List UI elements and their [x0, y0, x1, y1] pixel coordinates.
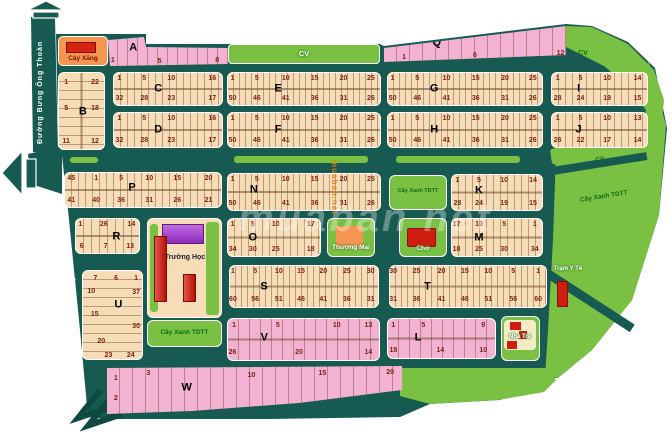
lot-number: 7 — [104, 243, 108, 250]
lot-number: 50 — [229, 137, 237, 144]
lot-number: 20 — [295, 349, 303, 356]
block-letter-P: P — [128, 182, 135, 193]
lot-number: 36 — [117, 197, 125, 204]
block-D: D15101632282317 — [113, 112, 223, 148]
lot-number: 40 — [92, 197, 100, 204]
lot-number: 30 — [249, 246, 257, 253]
lot-number: 10 — [282, 75, 290, 82]
lot-number: 31 — [340, 137, 348, 144]
lot-number: 5 — [415, 75, 419, 82]
lot-number: 10 — [282, 115, 290, 122]
lot-number: 41 — [438, 296, 446, 303]
block-letter-W: W — [181, 382, 191, 393]
cv-label-top: CV — [228, 50, 380, 58]
lot-number: 1 — [391, 115, 395, 122]
lot-number: 20 — [438, 268, 446, 275]
lot-number: 1 — [117, 75, 121, 82]
lot-number: 6 — [473, 52, 477, 59]
block-J: J15101326221714 — [551, 112, 648, 148]
block-P: P4515101520414036312621 — [64, 172, 222, 208]
lot-number: 15 — [311, 176, 319, 183]
lot-number: 20 — [340, 115, 348, 122]
lot-number: 32 — [115, 95, 123, 102]
lot-number: 15 — [173, 175, 181, 182]
green-tdtt-small-label: Cây Xanh TDTT — [390, 189, 446, 195]
gas-station-building — [66, 42, 96, 53]
lot-number: 11 — [62, 138, 69, 145]
lot-number: 1 — [94, 175, 98, 182]
lot-number: 34 — [531, 246, 539, 253]
lot-number: 25 — [367, 115, 375, 122]
block-F: F1510152025504641363126 — [227, 112, 381, 148]
lot-number: 20 — [386, 369, 394, 376]
lot-number: 5 — [142, 75, 146, 82]
lot-number: 24 — [577, 95, 585, 102]
green-tdtt-school-label: Cây Xanh TDTT — [147, 330, 222, 337]
lot-number: 5 — [579, 115, 583, 122]
lot-number: 25 — [343, 268, 351, 275]
block-A: A158 — [108, 36, 228, 66]
lot-number: 46 — [413, 137, 421, 144]
lot-number: 13 — [126, 243, 134, 250]
lot-number: 36 — [311, 95, 319, 102]
lot-number: 14 — [437, 347, 445, 354]
block-letter-R: R — [112, 231, 120, 242]
lot-number: 20 — [205, 175, 213, 182]
lot-number: 15 — [472, 115, 480, 122]
lot-number: 10 — [145, 175, 153, 182]
block-letter-U: U — [114, 300, 122, 311]
lot-number: 1 — [231, 115, 235, 122]
lot-number: 23 — [167, 95, 175, 102]
road-label-bung-ong-thoan-bottom: Đường Bưng Ông Thoàn — [60, 268, 79, 380]
lot-number: 50 — [229, 95, 237, 102]
lot-number: 30 — [389, 268, 397, 275]
lot-number: 5 — [421, 322, 425, 329]
health-station-label: Trạm Y Tế — [546, 266, 590, 272]
lot-number: 31 — [501, 95, 509, 102]
lot-number: 25 — [529, 75, 537, 82]
lot-number: 1 — [114, 375, 118, 382]
lot-number: 1 — [391, 75, 395, 82]
lot-number: 46 — [253, 137, 261, 144]
block-E: E1510152025504641363126 — [227, 72, 381, 106]
lot-number: 41 — [443, 95, 451, 102]
lot-number: 31 — [145, 197, 153, 204]
road-label-bung-ong-thoan-top: Đường Bưng Ông Thoàn — [37, 42, 44, 144]
green-area-bottom — [400, 364, 560, 406]
lot-number: 1 — [391, 322, 395, 329]
lot-number: 1 — [455, 177, 459, 184]
lot-number: 6 — [80, 243, 84, 250]
lot-number: 5 — [255, 176, 259, 183]
lot-number: 1 — [117, 115, 121, 122]
lot-number: 46 — [253, 95, 261, 102]
block-letter-S: S — [260, 281, 267, 292]
lot-number: 15 — [461, 268, 469, 275]
lot-number: 9 — [481, 322, 485, 329]
cv-label-top-right: CV — [568, 50, 598, 57]
health-station-building — [557, 281, 568, 307]
lot-number: 46 — [413, 95, 421, 102]
lot-number: 21 — [205, 197, 213, 204]
lot-number: 8 — [215, 57, 219, 64]
lot-number: 30 — [367, 268, 375, 275]
lot-number: 1 — [556, 115, 560, 122]
lot-number: 14 — [529, 177, 537, 184]
lot-number: 23 — [104, 352, 112, 359]
lot-number: 31 — [501, 137, 509, 144]
lot-number: 18 — [307, 246, 315, 253]
lot-number: 26 — [367, 95, 375, 102]
lot-number: 5 — [276, 322, 280, 329]
lot-number: 25 — [367, 176, 375, 183]
lot-number: 41 — [319, 296, 327, 303]
lot-number: 26 — [173, 197, 181, 204]
lot-number: 1 — [556, 75, 560, 82]
lot-number: 18 — [453, 246, 461, 253]
lot-number: 10 — [443, 115, 451, 122]
lot-number: 14 — [634, 75, 642, 82]
lot-number: 5 — [142, 115, 146, 122]
lot-number: 15 — [311, 115, 319, 122]
block-letter-D: D — [154, 125, 162, 136]
lot-number: 1 — [231, 176, 235, 183]
lot-number: 17 — [603, 137, 611, 144]
lot-number: 56 — [251, 296, 259, 303]
block-letter-B: B — [79, 106, 87, 117]
block-R: R126146713 — [75, 218, 140, 254]
block-letter-N: N — [250, 184, 258, 195]
lot-number: 1 — [134, 275, 138, 282]
market-label: Chợ — [399, 246, 447, 253]
lot-number: 31 — [340, 95, 348, 102]
lot-number: 14 — [365, 349, 373, 356]
lot-number: 36 — [311, 137, 319, 144]
lot-number: 22 — [91, 79, 99, 86]
lot-number: 19 — [603, 95, 611, 102]
lot-number: 10 — [167, 75, 175, 82]
lot-number: 51 — [484, 296, 492, 303]
kindergarten-label: Nhà Trẻ — [500, 334, 540, 340]
lot-number: 26 — [367, 137, 375, 144]
lot-number: 26 — [529, 137, 537, 144]
lot-number: 10 — [500, 177, 508, 184]
lot-number: 10 — [248, 372, 256, 379]
lot-number: 10 — [87, 288, 95, 295]
block-letter-K: K — [475, 186, 483, 197]
lot-number: 37 — [132, 289, 140, 296]
lot-number: 5 — [502, 221, 506, 228]
lot-number: 15 — [529, 200, 537, 207]
block-letter-A: A — [129, 43, 137, 54]
school-green-right — [206, 222, 219, 315]
lot-number: 32 — [115, 137, 123, 144]
lot-number: 56 — [509, 296, 517, 303]
lot-number: 41 — [67, 197, 75, 204]
lot-number: 18 — [389, 347, 397, 354]
lot-number: 20 — [501, 75, 509, 82]
road-bung-ong-thoan — [31, 17, 59, 152]
block-U: U76110371530202324 — [82, 270, 143, 360]
lot-number: 36 — [413, 296, 421, 303]
block-letter-V: V — [261, 332, 268, 343]
lot-number: 45 — [67, 175, 75, 182]
lot-number: 15 — [472, 75, 480, 82]
lot-number: 10 — [167, 115, 175, 122]
lot-number: 24 — [127, 352, 135, 359]
lot-number: 20 — [97, 338, 105, 345]
block-H: H1510152025504641363126 — [387, 112, 543, 148]
lot-number: 19 — [500, 200, 508, 207]
block-L: L159181410 — [387, 318, 496, 359]
lot-number: 18 — [91, 105, 99, 112]
lot-number: 26 — [529, 95, 537, 102]
lot-number: 28 — [140, 95, 148, 102]
lot-number: 1 — [78, 221, 82, 228]
lot-number: 5 — [415, 115, 419, 122]
median-strip — [70, 157, 98, 163]
lot-number: 31 — [389, 296, 397, 303]
lot-number: 26 — [229, 349, 237, 356]
lot-number: 5 — [64, 105, 68, 112]
lot-number: 41 — [282, 137, 290, 144]
lot-number: 22 — [577, 137, 585, 144]
school-label: Trường Học — [150, 254, 220, 261]
block-letter-G: G — [430, 84, 439, 95]
watermark: muaban net — [238, 196, 492, 241]
lot-number: 14 — [128, 221, 136, 228]
lot-number: 5 — [255, 115, 259, 122]
lot-number: 5 — [477, 177, 481, 184]
lot-number: 36 — [472, 95, 480, 102]
block-letter-F: F — [275, 125, 282, 136]
lot-number: 15 — [311, 75, 319, 82]
lot-number: 30 — [500, 246, 508, 253]
block-V: V151013262014 — [227, 318, 380, 361]
block-letter-E: E — [274, 84, 281, 95]
block-letter-J: J — [576, 125, 582, 136]
lot-number: 10 — [484, 268, 492, 275]
lot-number: 15 — [634, 95, 642, 102]
lot-number: 20 — [340, 75, 348, 82]
lot-number: 16 — [208, 115, 216, 122]
gas-station-label: Cây Xăng — [60, 56, 106, 63]
lot-number: 7 — [93, 275, 97, 282]
lot-number: 5 — [253, 268, 257, 275]
lot-number: 20 — [340, 176, 348, 183]
block-letter-C: C — [154, 84, 162, 95]
lot-number: 36 — [343, 296, 351, 303]
lot-number: 1 — [231, 75, 235, 82]
lot-number: 3 — [146, 370, 150, 377]
lot-number: 1 — [231, 221, 235, 228]
lot-number: 17 — [208, 137, 216, 144]
lot-number: 15 — [297, 268, 305, 275]
school-building-red — [183, 274, 196, 302]
block-I: I15101428241915 — [551, 72, 648, 106]
lot-number: 41 — [443, 137, 451, 144]
vertical-watermark: muaban.net — [330, 160, 339, 268]
lot-number: 1 — [533, 221, 537, 228]
lot-number: 15 — [91, 311, 99, 318]
block-B: B1225181112 — [58, 72, 105, 150]
median-strip — [396, 156, 520, 163]
lot-number: 20 — [501, 115, 509, 122]
lot-number: 46 — [297, 296, 305, 303]
lot-number: 26 — [554, 137, 562, 144]
block-letter-T: T — [424, 281, 431, 292]
lot-number: 23 — [167, 137, 175, 144]
lot-number: 1 — [231, 268, 235, 275]
lot-number: 10 — [603, 75, 611, 82]
lot-number: 20 — [319, 268, 327, 275]
lot-number: 13 — [634, 115, 642, 122]
block-letter-L: L — [415, 332, 422, 343]
lot-number: 34 — [229, 246, 237, 253]
block-letter-I: I — [577, 84, 580, 95]
lot-number: 1 — [111, 57, 115, 64]
lot-number: 5 — [511, 268, 515, 275]
lot-number: 36 — [472, 137, 480, 144]
lot-number: 6 — [114, 275, 118, 282]
lot-number: 5 — [158, 58, 162, 65]
lot-number: 1 — [64, 79, 68, 86]
lot-number: 25 — [272, 246, 280, 253]
median-strip — [234, 156, 368, 163]
lot-number: 50 — [389, 95, 397, 102]
north-arrow-icon — [24, 0, 68, 20]
lot-number: 26 — [100, 221, 108, 228]
lot-number: 28 — [554, 95, 562, 102]
lot-number: 25 — [475, 246, 483, 253]
lot-number: 12 — [91, 138, 99, 145]
block-letter-H: H — [430, 125, 438, 136]
lot-number: 28 — [140, 137, 148, 144]
lot-number: 25 — [367, 75, 375, 82]
lot-number: 41 — [282, 95, 290, 102]
lot-number: 60 — [229, 296, 237, 303]
plot-map: Cây Xăng Trường Học CV CV CV Cây Xanh TD… — [0, 0, 672, 437]
lot-number: 10 — [479, 347, 487, 354]
lot-number: 10 — [275, 268, 283, 275]
lot-number: 50 — [389, 137, 397, 144]
west-arrow-icon — [0, 144, 40, 202]
lot-number: 25 — [529, 115, 537, 122]
lot-number: 10 — [282, 176, 290, 183]
lot-number: 1 — [402, 54, 406, 61]
lot-number: 17 — [208, 95, 216, 102]
lot-number: 25 — [413, 268, 421, 275]
lot-number: 46 — [461, 296, 469, 303]
lot-number: 51 — [275, 296, 283, 303]
lot-number: 5 — [579, 75, 583, 82]
lot-number: 50 — [229, 200, 237, 207]
block-S: S15101520253060565146413631 — [229, 265, 379, 308]
lot-number: 16 — [208, 75, 216, 82]
lot-number: 10 — [603, 115, 611, 122]
lot-number: 2 — [114, 395, 118, 402]
kindergarten-building — [510, 322, 521, 330]
lot-number: 31 — [367, 296, 375, 303]
block-C: C15101632282317 — [113, 72, 223, 106]
lot-number: 14 — [634, 137, 642, 144]
lot-number: 13 — [365, 322, 373, 329]
lot-number: 15 — [318, 370, 326, 377]
lot-number: 1 — [232, 322, 236, 329]
block-G: G1510152025504641363126 — [387, 72, 543, 106]
school-building-purple — [162, 224, 204, 244]
kindergarten-building — [507, 341, 517, 349]
lot-number: 60 — [534, 296, 542, 303]
lot-number: 10 — [333, 322, 341, 329]
block-T: T30252015105131364146515660 — [389, 265, 547, 308]
lot-number: 5 — [255, 75, 259, 82]
school-building-red — [154, 236, 167, 302]
lot-number: 10 — [443, 75, 451, 82]
lot-number: 1 — [536, 268, 540, 275]
lot-number: 5 — [119, 175, 123, 182]
block-letter-Q: Q — [432, 37, 441, 48]
lot-number: 30 — [132, 323, 140, 330]
